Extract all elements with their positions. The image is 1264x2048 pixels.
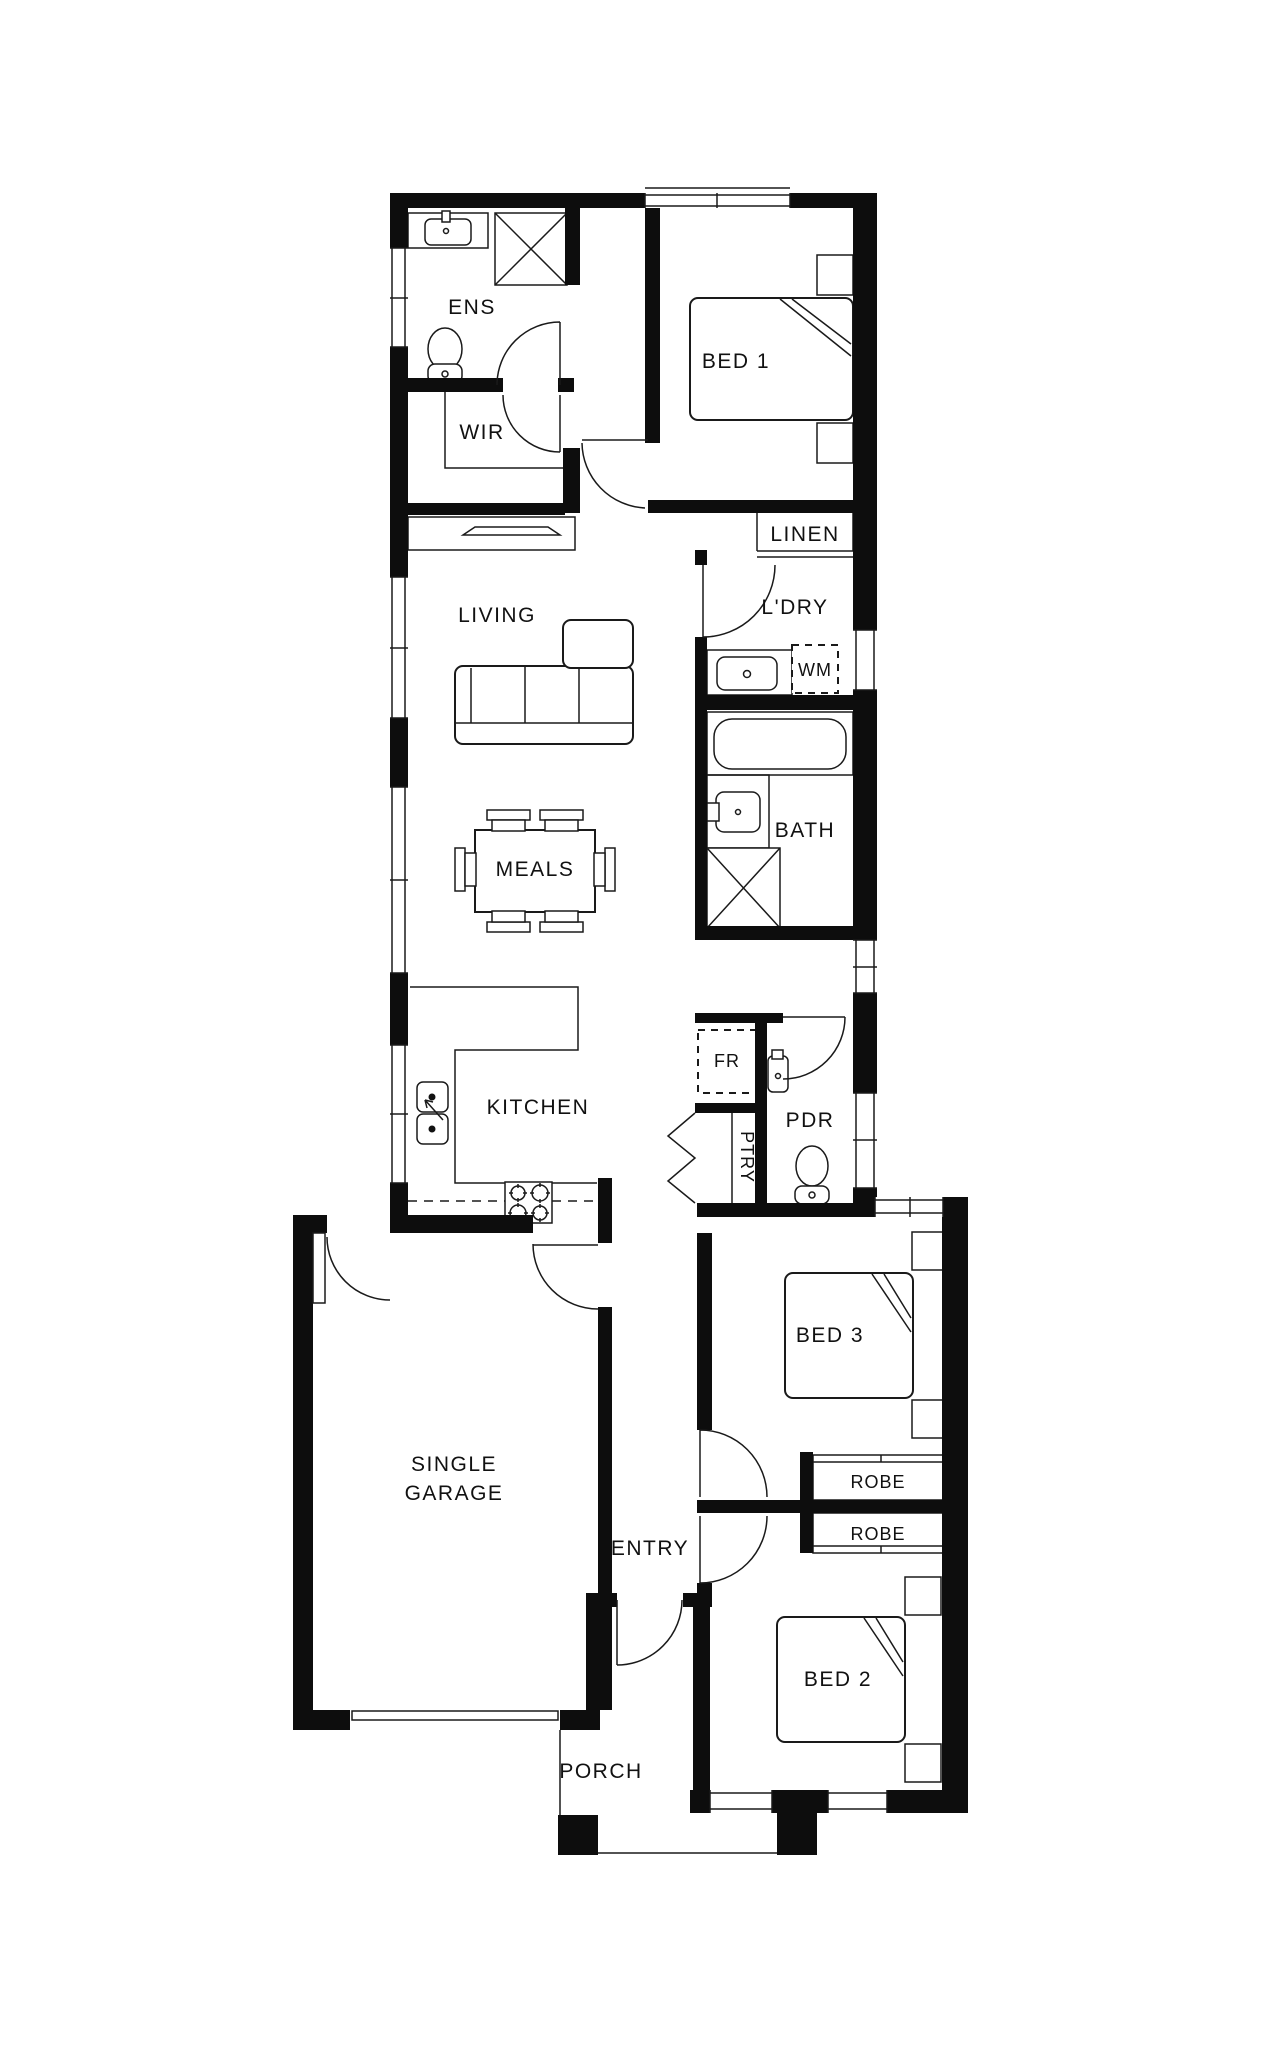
pdr-window — [853, 1093, 877, 1188]
hall-window — [853, 940, 877, 993]
pdr-door — [783, 1017, 845, 1079]
pdr-toilet-bowl — [796, 1146, 828, 1186]
bed1-side-table-bottom — [817, 423, 853, 463]
ens-window — [390, 248, 408, 347]
living-furniture — [408, 517, 633, 744]
room-label-meals: MEALS — [496, 858, 575, 881]
bed2-window-left — [710, 1790, 772, 1813]
floor-plan-drawing: ENS WIR BED 1 LINEN L'DRY LIVING WM BATH… — [0, 0, 1264, 2048]
ens-door — [497, 322, 560, 385]
room-label-linen: LINEN — [770, 523, 839, 546]
room-label-porch: PORCH — [559, 1760, 642, 1783]
room-label-entry: ENTRY — [611, 1537, 689, 1560]
pantry-bifold-doors — [668, 1113, 695, 1203]
room-label-bed2: BED 2 — [804, 1668, 872, 1691]
hall-door — [582, 440, 648, 508]
walls — [293, 193, 968, 1813]
kitchen-sink-drain-2 — [429, 1126, 436, 1133]
room-label-bath: BATH — [775, 819, 835, 842]
bed2-robe-sliding-doors — [813, 1546, 950, 1553]
laundry-trough-drain — [744, 671, 751, 678]
room-label-garage-line2: GARAGE — [405, 1482, 504, 1505]
ens-tap-icon — [442, 211, 450, 222]
wir-door — [503, 395, 560, 452]
pdr-tap-icon — [772, 1050, 783, 1059]
room-label-ldry: L'DRY — [761, 596, 828, 619]
linen-sliding-doors — [757, 551, 853, 557]
bed3-door — [700, 1430, 767, 1497]
room-label-fr: FR — [714, 1051, 740, 1071]
living-window — [390, 577, 408, 718]
bed1-window — [645, 188, 790, 208]
bed3-window — [875, 1197, 943, 1217]
room-label-ptry: PTRY — [737, 1131, 757, 1183]
ens-toilet-button — [442, 371, 448, 377]
tv — [463, 527, 560, 535]
room-label-robe1: ROBE — [850, 1472, 905, 1492]
garage-rear-access-door — [313, 1233, 390, 1303]
room-label-robe2: ROBE — [850, 1524, 905, 1544]
bed2-window-right — [828, 1790, 887, 1813]
garage-entry-access-door — [533, 1244, 598, 1309]
room-label-living: LIVING — [458, 604, 536, 627]
room-label-garage-line1: SINGLE — [411, 1453, 497, 1476]
sofa-chaise — [563, 620, 633, 668]
laundry-window — [853, 630, 877, 690]
room-label-bed3: BED 3 — [796, 1324, 864, 1347]
room-label-wm: WM — [798, 660, 832, 680]
room-label-wir: WIR — [459, 421, 504, 444]
room-label-ens: ENS — [448, 296, 496, 319]
bed2-door — [700, 1516, 767, 1583]
bath-basin-drain — [736, 810, 741, 815]
bed1-side-table-top — [817, 255, 853, 295]
bed3-robe-sliding-doors — [813, 1455, 950, 1462]
kitchen-sink-drain-1 — [429, 1094, 436, 1101]
bath-tap-icon — [707, 803, 719, 821]
room-labels: ENS WIR BED 1 LINEN L'DRY LIVING WM BATH… — [405, 296, 906, 1783]
room-label-kitchen: KITCHEN — [487, 1096, 590, 1119]
pdr-basin-drain — [776, 1074, 781, 1079]
ens-basin-drain — [444, 229, 449, 234]
front-door — [617, 1600, 682, 1665]
porch-piers — [558, 1813, 817, 1855]
bed2-side-table-top — [905, 1577, 941, 1615]
room-label-pdr: PDR — [786, 1109, 835, 1132]
kitchen-window — [390, 1045, 408, 1183]
garage-door-panel — [352, 1711, 558, 1720]
meals-window — [390, 787, 408, 973]
bed2-side-table-bottom — [905, 1744, 941, 1782]
pantry-fixtures — [668, 1113, 732, 1203]
room-label-bed1: BED 1 — [702, 350, 770, 373]
floor-plan-page: ENS WIR BED 1 LINEN L'DRY LIVING WM BATH… — [0, 0, 1264, 2048]
bath-tub — [714, 719, 846, 769]
sofa-body — [455, 666, 633, 744]
pdr-toilet-button — [809, 1192, 815, 1198]
